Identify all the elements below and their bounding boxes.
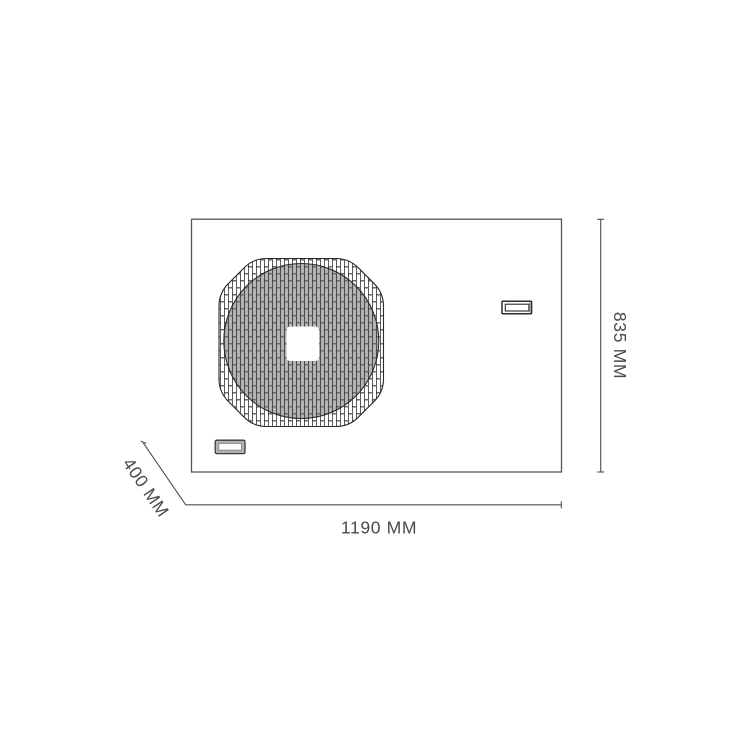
svg-text:400 MM: 400 MM — [119, 454, 174, 521]
svg-text:1190 MM: 1190 MM — [341, 518, 417, 538]
svg-text:835 MM: 835 MM — [610, 312, 630, 379]
